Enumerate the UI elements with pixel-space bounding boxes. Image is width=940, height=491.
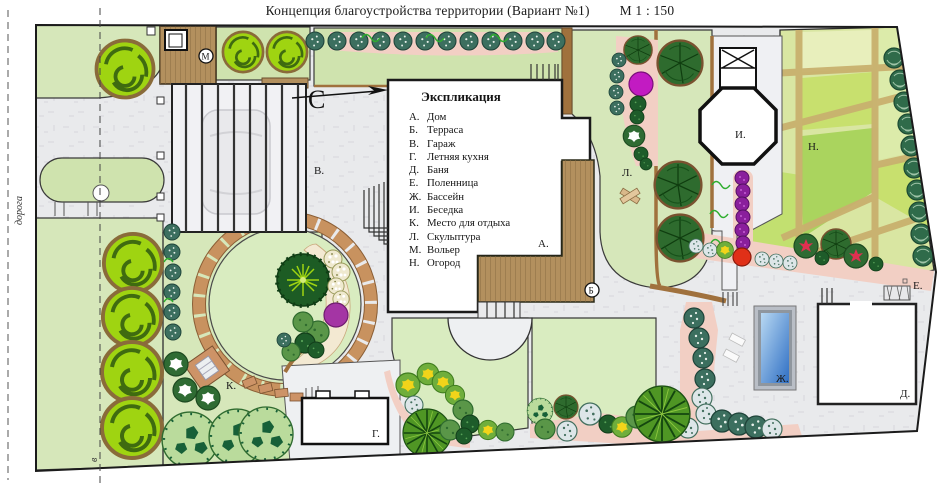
legend-item: Н.Огород bbox=[409, 257, 577, 270]
label-rest-area: К. bbox=[226, 380, 236, 392]
red-plant bbox=[733, 248, 751, 266]
section-mark-label: в bbox=[89, 457, 100, 462]
car-outline bbox=[202, 110, 270, 214]
purple-plant bbox=[324, 303, 348, 327]
woodpile bbox=[884, 286, 910, 300]
legend-item: Е.Поленница bbox=[409, 177, 577, 190]
label-aviary: М bbox=[199, 49, 213, 63]
legend-item: К.Место для отдыха bbox=[409, 217, 577, 230]
legend-block: Экспликация А.Дом Б.Терраса В.Гараж Г.Ле… bbox=[409, 89, 577, 271]
legend-item: Б.Терраса bbox=[409, 124, 577, 137]
svg-text:Б: Б bbox=[589, 286, 594, 296]
legend-item: Д.Баня bbox=[409, 164, 577, 177]
legend-item: И.Беседка bbox=[409, 204, 577, 217]
label-woodpile: Е. bbox=[913, 280, 923, 292]
legend-title: Экспликация bbox=[421, 89, 577, 105]
drawing-title: Концепция благоустройства территории (Ва… bbox=[0, 3, 940, 19]
title-text: Концепция благоустройства территории (Ва… bbox=[266, 3, 590, 18]
magenta-tree bbox=[629, 72, 653, 96]
label-bathhouse: Д. bbox=[900, 388, 911, 400]
legend-item: А.Дом bbox=[409, 111, 577, 124]
garage-carport bbox=[172, 84, 306, 232]
bathhouse-door-gap bbox=[850, 301, 872, 306]
road-label: дорога bbox=[14, 196, 25, 225]
label-sculpture: Л. bbox=[622, 167, 632, 179]
palm-tree bbox=[634, 386, 690, 442]
gazebo-octagon bbox=[700, 88, 776, 164]
legend-item: Ж.Бассейн bbox=[409, 191, 577, 204]
legend-item: Л.Скульптура bbox=[409, 231, 577, 244]
bathhouse bbox=[818, 288, 916, 404]
landscape-plan-canvas: дорога в С А. Б В. Г. Д. Е. Ж. И. К. Л. … bbox=[0, 0, 940, 491]
legend-item: Г.Летняя кухня bbox=[409, 151, 577, 164]
island-manhole bbox=[93, 185, 109, 201]
legend-item: В.Гараж bbox=[409, 138, 577, 151]
terrace-steps bbox=[478, 302, 520, 318]
label-gazebo: И. bbox=[735, 129, 746, 141]
label-summer-kitchen: Г. bbox=[372, 428, 380, 440]
label-terrace: Б bbox=[585, 283, 599, 297]
legend-item: М.Вольер bbox=[409, 244, 577, 257]
pale-trees bbox=[162, 407, 293, 468]
scale-text: М 1 : 150 bbox=[620, 3, 675, 18]
label-vegetable-garden: Н. bbox=[808, 141, 819, 153]
north-letter: С bbox=[308, 85, 325, 114]
svg-text:М: М bbox=[202, 52, 210, 62]
label-garage: В. bbox=[314, 165, 324, 177]
label-pool: Ж. bbox=[776, 373, 789, 385]
